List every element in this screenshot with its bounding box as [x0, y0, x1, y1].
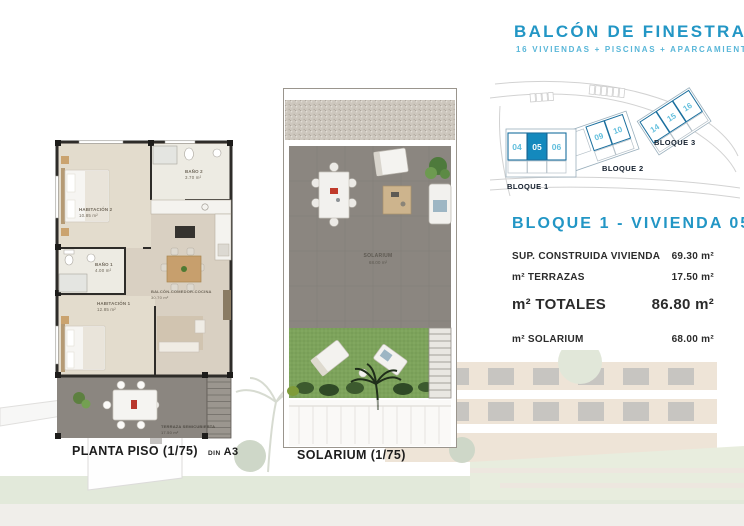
site-plan: 14 15 16 BLOQUE 3 09 10 BLOQUE 2 0 — [490, 76, 740, 200]
unit-04: 04 — [512, 142, 522, 152]
detail-value: 17.50 m² — [672, 272, 714, 283]
pallet-table — [383, 186, 411, 214]
room-area: 10.85 m² — [79, 213, 98, 218]
room-area: 17.50 m² — [161, 430, 179, 435]
detail-label: SUP. CONSTRUIDA VIVIENDA — [512, 251, 660, 262]
room-label: HABITACIÓN 1 — [97, 301, 131, 306]
detail-value: 69.30 m² — [672, 251, 714, 262]
detail-label: m² TOTALES — [512, 296, 606, 313]
site-block-2-label: BLOQUE 2 — [602, 164, 644, 173]
project-subtitle: 16 VIVIENDAS + PISCINAS + APARCAMIENTO — [516, 45, 744, 54]
solarium-caption: SOLARIUM (1/75) — [297, 448, 406, 462]
room-label: BAÑO 1 — [95, 262, 113, 267]
detail-label: m² SOLARIUM — [512, 334, 584, 345]
caption-text: SOLARIUM (1/75) — [297, 448, 406, 462]
detail-value: 86.80 m² — [652, 296, 714, 313]
room-area: 30.70 m² — [151, 295, 169, 300]
gravel-strip — [285, 100, 455, 140]
solarium-stairs — [429, 328, 451, 398]
lounge-sofa — [373, 148, 408, 176]
caption-text: PLANTA PISO (1/75) — [72, 444, 198, 458]
solarium-label: SOLARIUM — [363, 253, 392, 259]
detail-label: m² TERRAZAS — [512, 272, 585, 283]
room-area: 12.85 m² — [97, 307, 116, 312]
detail-value: 68.00 m² — [672, 334, 714, 345]
solarium-area: 68.00 m² — [369, 260, 388, 265]
lounge-chair — [429, 184, 451, 224]
detail-row-solarium: m² SOLARIUM 68.00 m² — [512, 334, 714, 345]
floor-plan: HABITACIÓN 2 10.85 m² BAÑO 2 3.70 m² BAÑ… — [55, 140, 233, 440]
sheet-size: A3 — [224, 446, 239, 458]
site-block-1-label: BLOQUE 1 — [507, 182, 549, 191]
room-label: TERRAZA SEMICUBIERTA — [161, 424, 215, 429]
solarium-plan: SOLARIUM 68.00 m² — [283, 88, 457, 448]
detail-row-totales: m² TOTALES 86.80 m² — [512, 296, 714, 313]
floor-plan-caption: PLANTA PISO (1/75) DIN A3 — [72, 444, 239, 458]
room-label: BAÑO 2 — [185, 169, 203, 174]
detail-row-construida: SUP. CONSTRUIDA VIVIENDA 69.30 m² — [512, 251, 714, 262]
elevation-fragment — [289, 400, 451, 446]
room-area: 4.00 m² — [95, 268, 112, 273]
brochure-page: BALCÓN DE FINESTRAT 16 VIVIENDAS + PISCI… — [0, 0, 744, 526]
site-block-1: 04 05 06 — [506, 129, 576, 177]
room-area: 3.70 m² — [185, 175, 202, 180]
unit-05-highlighted: 05 — [532, 142, 542, 152]
unit-heading: BLOQUE 1 - VIVIENDA 05 — [512, 215, 744, 233]
din-label: DIN — [208, 450, 221, 457]
room-label: BALCÓN-COMEDOR-COCINA — [151, 289, 212, 294]
project-title: BALCÓN DE FINESTRAT — [514, 22, 744, 42]
detail-row-terrazas: m² TERRAZAS 17.50 m² — [512, 272, 714, 283]
unit-06: 06 — [552, 142, 562, 152]
site-block-3-label: BLOQUE 3 — [654, 138, 696, 147]
room-label: HABITACIÓN 2 — [79, 207, 113, 212]
